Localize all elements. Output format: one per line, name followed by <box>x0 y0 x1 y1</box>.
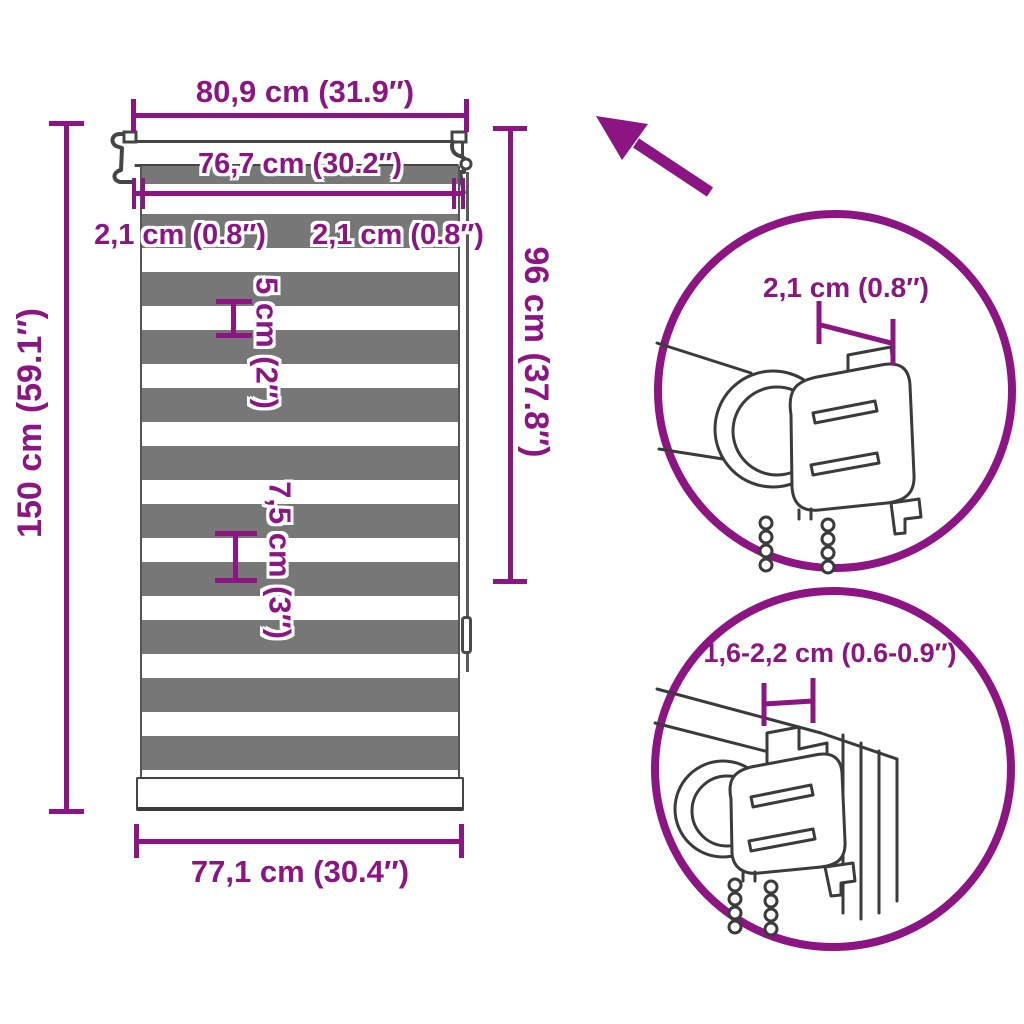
top-width-cap-right <box>464 99 469 132</box>
chain-connector <box>461 616 472 654</box>
fabric-stripe-gap <box>142 184 458 214</box>
total-height-label: 150 cm (59.1″) <box>13 308 47 538</box>
detail-top-label: 2,1 cm (0.8″) <box>696 274 996 302</box>
product-dimension-diagram: 80,9 cm (31.9″) 76,7 cm (30.2″) 2,1 cm (… <box>0 0 1024 1024</box>
detail-bottom-label: 1,6-2,2 cm (0.6-0.9″) <box>650 640 1010 667</box>
bottom-width-label: 77,1 cm (30.4″) <box>135 856 465 887</box>
zebra-fabric <box>140 166 460 777</box>
fabric-height-cap-top <box>493 126 527 131</box>
fabric-height-cap-bottom <box>493 579 527 584</box>
bottom-width-cap-left <box>134 824 139 858</box>
top-width-cap-left <box>131 99 136 132</box>
inner-width-cap <box>141 178 145 209</box>
total-height-line <box>64 123 69 814</box>
inner-width-cap <box>452 178 456 209</box>
fabric-height-line <box>508 128 513 584</box>
inner-width-line <box>134 191 462 196</box>
bottom-width-line <box>136 839 463 844</box>
bottom-width-cap-right <box>459 824 464 858</box>
inner-width-label: 76,7 cm (30.2″) <box>135 150 465 179</box>
white-stripe-vline <box>231 299 236 338</box>
stripe-pair-label: 7,5 cm (3″) <box>265 481 296 639</box>
white-stripe-label: 5 cm (2″) <box>252 277 283 409</box>
up-left-arrow-icon <box>580 100 730 205</box>
fabric-height-label: 96 cm (37.8″) <box>519 247 553 458</box>
detail-circle-top <box>651 207 1019 575</box>
top-width-label: 80,9 cm (31.9″) <box>140 76 470 107</box>
top-width-line <box>133 113 468 118</box>
bracket-offset-right-label: 2,1 cm (0.8″) <box>300 221 496 250</box>
inner-width-cap <box>132 178 136 209</box>
total-height-cap-top <box>49 121 84 126</box>
bracket-offset-left-label: 2,1 cm (0.8″) <box>82 221 278 250</box>
stripe-pair-vline <box>233 531 238 583</box>
bottom-bar <box>136 777 464 811</box>
total-height-cap-bottom <box>49 809 84 814</box>
inner-width-cap <box>461 178 465 209</box>
